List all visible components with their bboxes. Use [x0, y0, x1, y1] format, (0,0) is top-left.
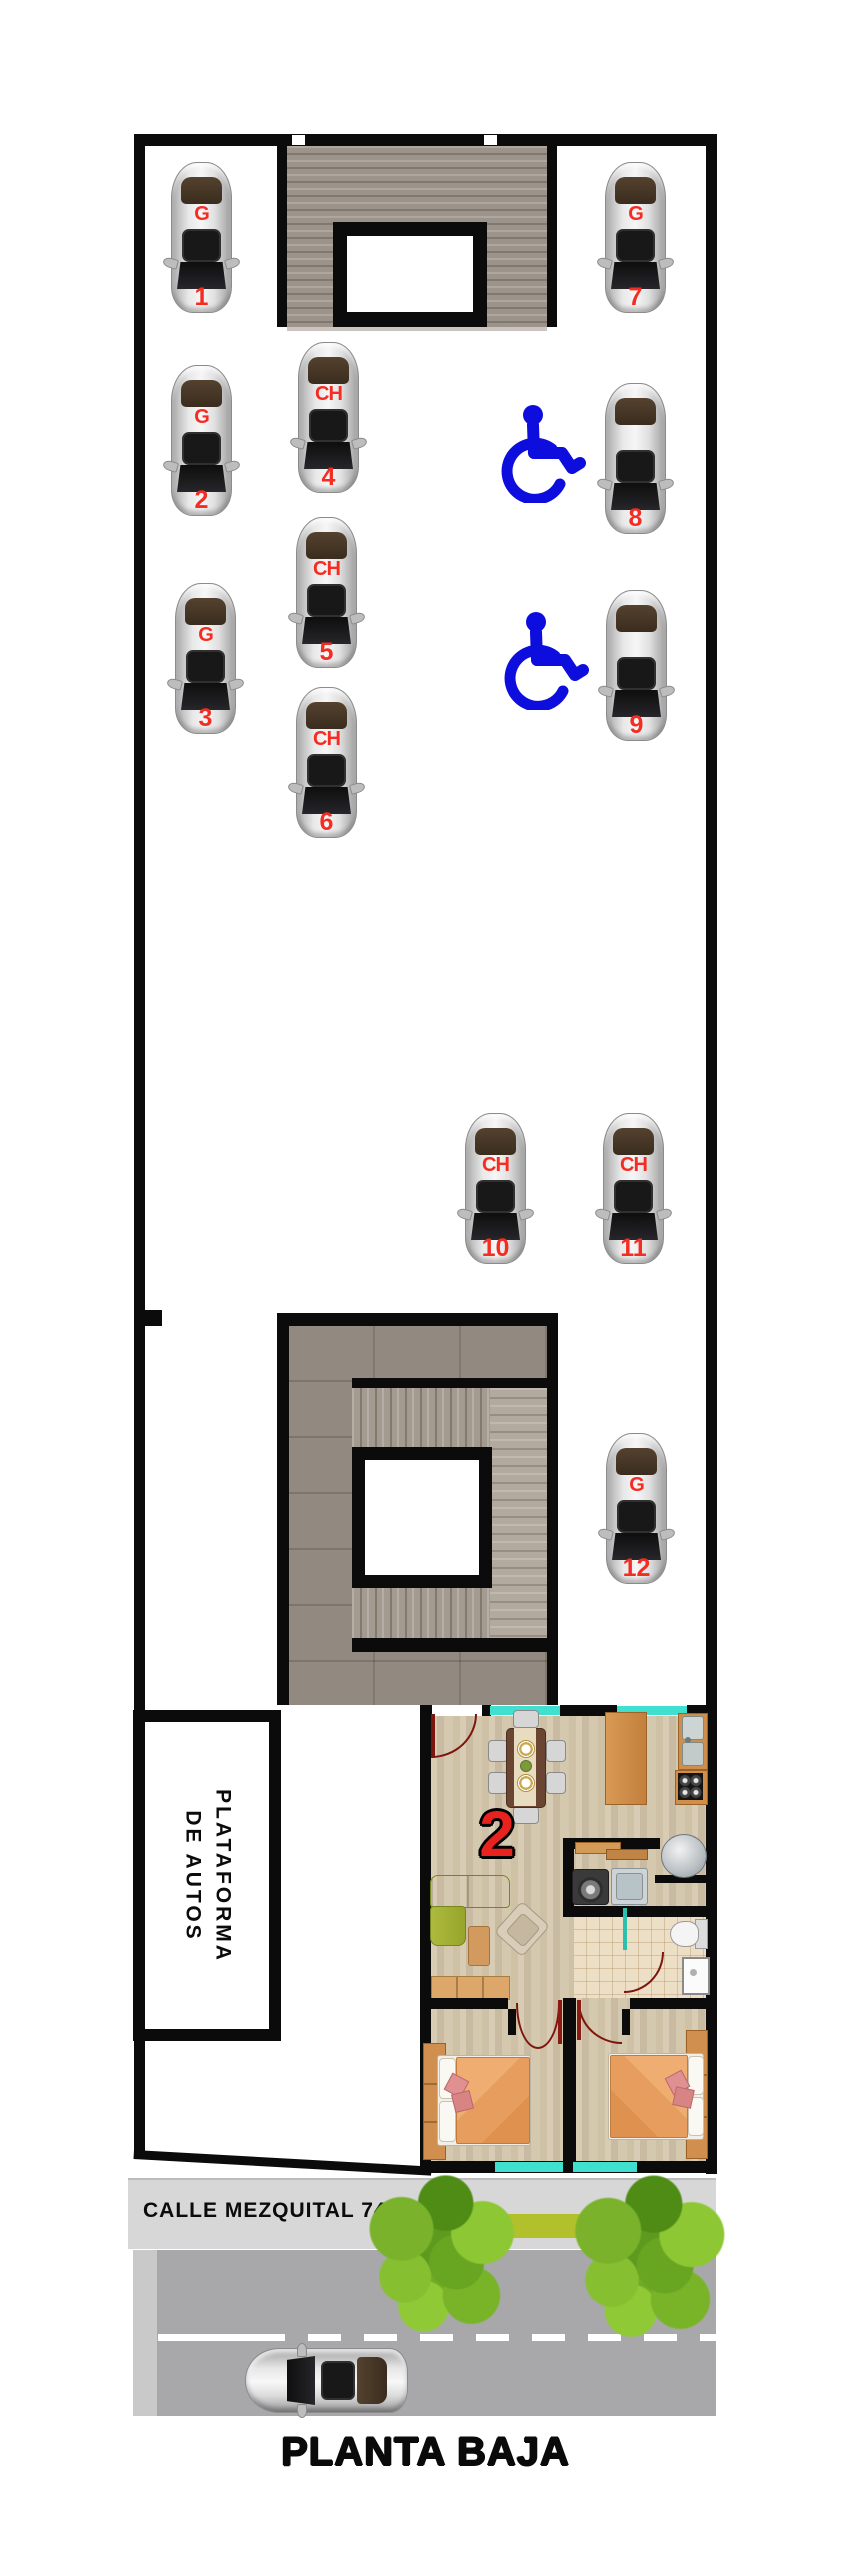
- spot-type-label: CH: [295, 383, 362, 405]
- spot-number-label: 2: [168, 487, 235, 513]
- lobby-wall-left: [277, 1326, 289, 1705]
- plan-title: PLANTA BAJA: [134, 2430, 717, 2475]
- car-roof: [617, 1500, 656, 1533]
- spot-type-label: CH: [293, 728, 360, 750]
- car-roof: [307, 754, 346, 787]
- parked-car-spot-4: CH 4: [295, 342, 362, 493]
- parked-car-spot-9: 9: [603, 590, 670, 741]
- street-car-mirror-top: [297, 2343, 307, 2357]
- coffee-table: [468, 1926, 490, 1966]
- kitchen-faucet: [685, 1737, 691, 1743]
- parked-car-spot-7: G 7: [602, 162, 669, 313]
- car-platform-box: PLATAFORMA DE AUTOS: [133, 1710, 281, 2041]
- car-rear-window: [185, 598, 226, 625]
- laundry-sink-basin: [616, 1873, 643, 1900]
- kitchen-island: [605, 1712, 647, 1805]
- spot-number-label: 12: [603, 1555, 670, 1581]
- car-roof: [476, 1180, 515, 1213]
- car-roof: [617, 657, 656, 690]
- tree-2: [555, 2170, 745, 2360]
- car-rear-window: [181, 380, 222, 407]
- bedroom-door-jamb-right: [622, 2009, 630, 2035]
- sofa-chaise-section: [430, 1906, 466, 1946]
- kitchen-sink-basin-2: [682, 1742, 704, 1766]
- top-stairwell-wall-left: [277, 146, 287, 327]
- top-elevator-shaft: [347, 236, 473, 312]
- washing-machine: [572, 1869, 609, 1905]
- top-wall-door-notch-left: [292, 135, 305, 145]
- spot-number-label: 9: [603, 712, 670, 738]
- parked-car-spot-2: G 2: [168, 365, 235, 516]
- parked-car-spot-10: CH 10: [462, 1113, 529, 1264]
- car-roof: [616, 450, 655, 483]
- car-rear-window: [306, 702, 347, 729]
- spot-number-label: 3: [172, 705, 239, 731]
- car-rear-window: [181, 177, 222, 204]
- wall-left-nub: [134, 1310, 162, 1326]
- bottom-stairs-upper-run: [352, 1388, 490, 1447]
- spot-number-label: 11: [600, 1235, 667, 1261]
- parked-car-spot-5: CH 5: [293, 517, 360, 668]
- street-car-rear-window: [357, 2357, 387, 2404]
- toilet-bowl: [670, 1921, 699, 1947]
- top-stairwell-wall-right: [547, 146, 557, 327]
- bottom-stairwell-wall-bottom: [352, 1638, 553, 1652]
- street-car-windshield: [287, 2356, 315, 2405]
- dining-chair-right-1: [546, 1740, 566, 1762]
- kitchen-sink-basin-1: [682, 1716, 704, 1740]
- car-platform-label-line1: PLATAFORMA: [207, 1789, 237, 1963]
- bedroom-door-jamb-left: [508, 2009, 516, 2035]
- water-heater: [661, 1834, 707, 1878]
- car-rear-window: [616, 605, 657, 632]
- car-platform-label: PLATAFORMA DE AUTOS: [177, 1789, 238, 1963]
- car-rear-window: [615, 177, 656, 204]
- spot-number-label: 10: [462, 1235, 529, 1261]
- bedroom-wall-left-span: [431, 1998, 508, 2009]
- car-platform-label-line2: DE AUTOS: [177, 1789, 207, 1963]
- spot-type-label: G: [602, 203, 669, 225]
- tree-1: [350, 2170, 534, 2354]
- bottom-stairs-lower-run: [352, 1588, 490, 1638]
- wall-top: [134, 134, 717, 146]
- spot-type-label: G: [172, 624, 239, 646]
- handicap-icon-2: [503, 610, 591, 710]
- unit-number-label: 2: [462, 1802, 532, 1866]
- street-gutter: [133, 2250, 157, 2416]
- spot-number-label: 6: [293, 809, 360, 835]
- car-rear-window: [308, 357, 349, 384]
- car-roof: [182, 432, 221, 465]
- car-rear-window: [616, 1448, 657, 1475]
- bed-right-cushion-2: [672, 2086, 695, 2109]
- tv-stand: [431, 1976, 510, 2000]
- stove-cooktop: [678, 1773, 703, 1800]
- top-stairwell-shadow: [287, 327, 547, 331]
- bottom-stairwell-wall-top: [352, 1378, 553, 1388]
- handicap-icon-1: [500, 403, 588, 503]
- spot-type-label: G: [168, 406, 235, 428]
- floor-plan-canvas: PLATAFORMA DE AUTOS: [0, 0, 864, 2560]
- lane-line-solid: [158, 2334, 285, 2341]
- parked-car-spot-12: G 12: [603, 1433, 670, 1584]
- dining-chair-left-2: [488, 1772, 508, 1794]
- car-rear-window: [475, 1128, 516, 1155]
- dining-bowl: [520, 1760, 532, 1772]
- bedroom-divider-wall: [563, 1998, 576, 2172]
- bathroom-glass-partition: [623, 1908, 627, 1950]
- spot-type-label: CH: [462, 1154, 529, 1176]
- dining-plate-2: [517, 1774, 535, 1792]
- car-rear-window: [613, 1128, 654, 1155]
- car-roof: [614, 1180, 653, 1213]
- street-car-mirror-bottom: [297, 2404, 307, 2418]
- parked-car-spot-11: CH 11: [600, 1113, 667, 1264]
- parked-car-spot-1: G 1: [168, 162, 235, 313]
- shower-tray: [682, 1957, 710, 1995]
- parked-car-spot-3: G 3: [172, 583, 239, 734]
- street-car: [245, 2348, 408, 2413]
- dining-chair-right-2: [546, 1772, 566, 1794]
- street-car-roof: [321, 2361, 355, 2400]
- dining-plate-1: [517, 1740, 535, 1758]
- parked-car-spot-6: CH 6: [293, 687, 360, 838]
- dining-chair-top: [513, 1710, 539, 1728]
- spot-number-label: 8: [602, 505, 669, 531]
- car-rear-window: [615, 398, 656, 425]
- shower-drain: [690, 1969, 697, 1976]
- sofa-back-section: [430, 1875, 510, 1908]
- bottom-elevator-shaft: [365, 1460, 479, 1575]
- car-roof: [182, 229, 221, 262]
- spot-type-label: G: [168, 203, 235, 225]
- car-rear-window: [306, 532, 347, 559]
- dining-chair-left-1: [488, 1740, 508, 1762]
- top-wall-door-notch-right: [484, 135, 497, 145]
- parked-car-spot-8: 8: [602, 383, 669, 534]
- spot-type-label: CH: [600, 1154, 667, 1176]
- car-roof: [307, 584, 346, 617]
- spot-number-label: 5: [293, 639, 360, 665]
- bedroom-door-leaf-left: [558, 2000, 562, 2044]
- bedroom-door-leaf-right: [577, 2000, 581, 2040]
- car-roof: [186, 650, 225, 683]
- lobby-wall-top: [277, 1313, 558, 1326]
- apt-entry-door-leaf: [431, 1714, 435, 1758]
- car-roof: [616, 229, 655, 262]
- spot-number-label: 7: [602, 284, 669, 310]
- bottom-stairs-landing: [490, 1388, 547, 1638]
- wall-right: [706, 134, 717, 2174]
- spot-type-label: G: [603, 1474, 670, 1496]
- bedroom-wall-right-span: [630, 1998, 717, 2009]
- utility-shelf-2: [606, 1849, 648, 1860]
- spot-type-label: CH: [293, 558, 360, 580]
- spot-number-label: 4: [295, 464, 362, 490]
- car-roof: [309, 409, 348, 442]
- bathroom-wall-top: [563, 1906, 706, 1917]
- spot-number-label: 1: [168, 284, 235, 310]
